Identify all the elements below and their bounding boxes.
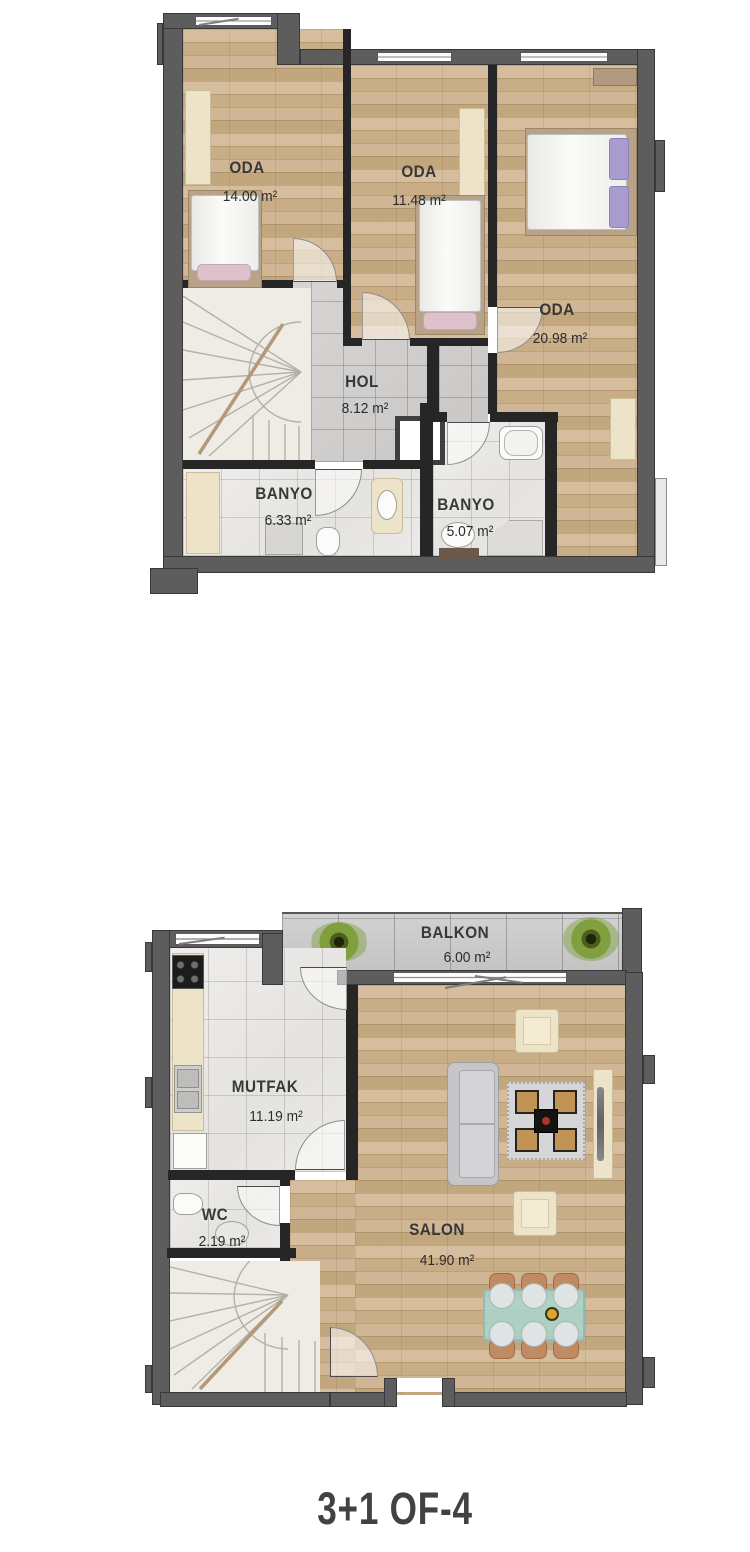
bedroom3-label: ODA	[503, 300, 611, 320]
lf-tab-right-1	[643, 1055, 655, 1084]
kitchen-stove	[172, 955, 204, 989]
upper-floor-plan: ODA 14.00 m² ODA 11.48 m² ODA 20.98 m² H…	[163, 10, 683, 596]
lf-living-bottom-wall-b	[442, 1392, 627, 1407]
entry-pier-right	[442, 1378, 455, 1407]
lf-balcony-door-pier	[262, 933, 283, 985]
partition-bedroom1-bedroom2	[343, 29, 351, 346]
partition-stub-bathroom2	[488, 353, 497, 414]
bathroom2-mat	[439, 548, 479, 560]
bedroom1-area: 14.00 m²	[195, 188, 305, 205]
hall-area: 8.12 m²	[310, 400, 420, 417]
bedroom1-bed	[191, 195, 259, 271]
bedroom2-bed	[419, 200, 481, 312]
outer-wall-step	[277, 13, 300, 65]
plan-title: 3+1 OF-4	[118, 1483, 672, 1535]
kitchen-south-wall	[168, 1170, 295, 1180]
dining-set	[481, 1271, 591, 1361]
kitchen-base-cabinet	[173, 1133, 207, 1169]
place-setting-2	[521, 1283, 547, 1309]
kitchen-east-wall	[346, 985, 358, 1180]
wall-tab-left	[157, 23, 163, 65]
bathroom2-label: BANYO	[412, 495, 520, 515]
armchair-bottom-seat	[521, 1199, 549, 1228]
lf-tab-left-3	[145, 1365, 152, 1393]
bedroom3-wardrobe	[610, 398, 636, 460]
bedroom1-south-wall-b	[337, 280, 345, 288]
hall-label: HOL	[308, 372, 416, 392]
living-room-label: SALON	[383, 1220, 491, 1240]
kitchen-sink-basin-2	[177, 1091, 199, 1109]
kitchen-area: 11.19 m²	[221, 1108, 331, 1125]
bedroom3-dresser	[593, 68, 637, 86]
bedroom2-south-wall-b	[410, 338, 488, 346]
place-setting-4	[489, 1321, 515, 1347]
bedroom2-south-wall-a	[350, 338, 362, 346]
outer-wall-bottom-step	[150, 568, 198, 594]
lf-tab-left-1	[145, 942, 152, 972]
sofa-seat	[459, 1070, 495, 1178]
bathroom1-north-wall-a	[183, 460, 315, 469]
bedroom3-pillow-2	[609, 186, 629, 228]
spiral-staircase	[183, 288, 311, 460]
lf-tab-right-2	[643, 1357, 655, 1388]
wall-tab-right	[655, 140, 665, 192]
bathroom1-north-wall-b	[363, 460, 420, 469]
entry-recess	[397, 1378, 442, 1392]
lower-staircase	[170, 1261, 320, 1392]
wc-label: WC	[161, 1205, 269, 1225]
partition-bathroom2-bedroom3	[545, 412, 557, 556]
wc-area: 2.19 m²	[167, 1233, 277, 1250]
lf-stair-bottom-wall	[160, 1392, 330, 1407]
bedroom1-label: ODA	[193, 158, 301, 178]
bathroom1-toilet	[316, 527, 340, 556]
bathroom2-bathtub-inner	[504, 430, 538, 456]
bedroom3-window	[520, 52, 608, 62]
lower-floor-plan: BALKON 6.00 m² MUTFAK 11.19 m² WC 2.19 m…	[145, 905, 675, 1425]
lf-outer-wall-right	[625, 972, 643, 1405]
bedroom2-pillow	[423, 312, 477, 330]
kitchen-label: MUTFAK	[211, 1077, 319, 1097]
bathroom2-area: 5.07 m²	[415, 523, 525, 540]
place-setting-6	[553, 1321, 579, 1347]
bedroom1-pillow	[197, 264, 251, 281]
bathroom1-closet	[186, 472, 220, 554]
balcony-area: 6.00 m²	[412, 949, 522, 966]
coffee-table-decor	[542, 1117, 550, 1125]
bedroom2-area: 11.48 m²	[364, 192, 474, 209]
bathroom1-area: 6.33 m²	[233, 512, 343, 529]
rug	[507, 1082, 585, 1160]
bathroom1-sink-basin	[377, 490, 397, 520]
bedroom3-pillow-1	[609, 138, 629, 180]
bathroom2-north-wall-a	[433, 412, 447, 422]
place-setting-5	[521, 1321, 547, 1347]
balcony-plant-right	[563, 917, 619, 961]
kitchen-sink-basin-1	[177, 1069, 199, 1088]
entry-pier-left	[384, 1378, 397, 1407]
partition-bedroom2-bedroom3	[488, 65, 497, 307]
tv	[597, 1087, 604, 1161]
place-setting-3	[553, 1283, 579, 1309]
outer-wall-bottom	[163, 556, 655, 573]
balcony-label: BALKON	[401, 923, 509, 943]
bedroom2-label: ODA	[365, 162, 473, 182]
lf-outer-wall-left	[152, 930, 170, 1405]
wc-east-wall-a	[280, 1177, 290, 1186]
bedroom3-area: 20.98 m²	[505, 330, 615, 347]
outer-wall-left	[163, 13, 183, 573]
bedroom2-window	[377, 52, 452, 62]
bathroom1-label: BANYO	[230, 484, 338, 504]
place-setting-1	[489, 1283, 515, 1309]
outer-wall-right	[637, 49, 655, 573]
armchair-top-seat	[523, 1017, 551, 1045]
living-room-area: 41.90 m²	[392, 1252, 502, 1269]
exterior-ledge	[655, 478, 667, 566]
bedroom2-wardrobe	[459, 108, 485, 200]
dining-centerpiece	[545, 1307, 559, 1321]
lf-tab-left-2	[145, 1077, 152, 1108]
